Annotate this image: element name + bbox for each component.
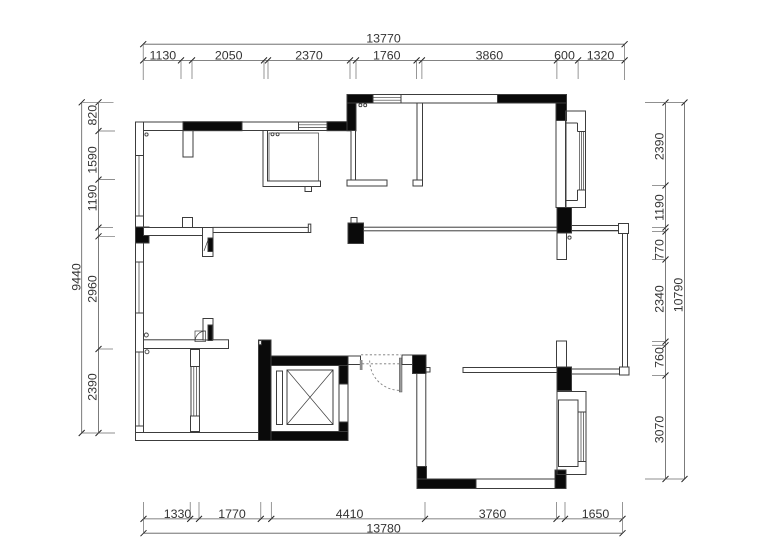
svg-text:2370: 2370 [295,49,323,63]
svg-text:1320: 1320 [587,49,615,63]
svg-text:3860: 3860 [476,49,504,63]
svg-text:600: 600 [554,49,575,63]
svg-text:1760: 1760 [373,49,401,63]
svg-text:9440: 9440 [70,263,84,291]
svg-text:1130: 1130 [149,49,176,63]
svg-text:1190: 1190 [653,194,667,221]
svg-text:2390: 2390 [86,373,100,401]
svg-text:820: 820 [86,105,100,126]
svg-text:4410: 4410 [336,507,364,521]
svg-text:3070: 3070 [653,416,667,444]
svg-text:13780: 13780 [366,521,401,535]
svg-text:1330: 1330 [164,507,192,521]
svg-text:3760: 3760 [479,507,507,521]
svg-text:13770: 13770 [366,31,401,45]
svg-text:1190: 1190 [86,185,100,212]
svg-text:770: 770 [653,239,667,260]
svg-text:10790: 10790 [671,278,685,313]
svg-text:1590: 1590 [86,146,100,174]
svg-text:1770: 1770 [218,507,246,521]
svg-text:2960: 2960 [86,275,100,303]
svg-text:2390: 2390 [653,133,667,161]
svg-text:2340: 2340 [653,285,667,313]
svg-text:2050: 2050 [215,49,243,63]
svg-text:760: 760 [653,347,667,368]
svg-text:1650: 1650 [582,507,610,521]
